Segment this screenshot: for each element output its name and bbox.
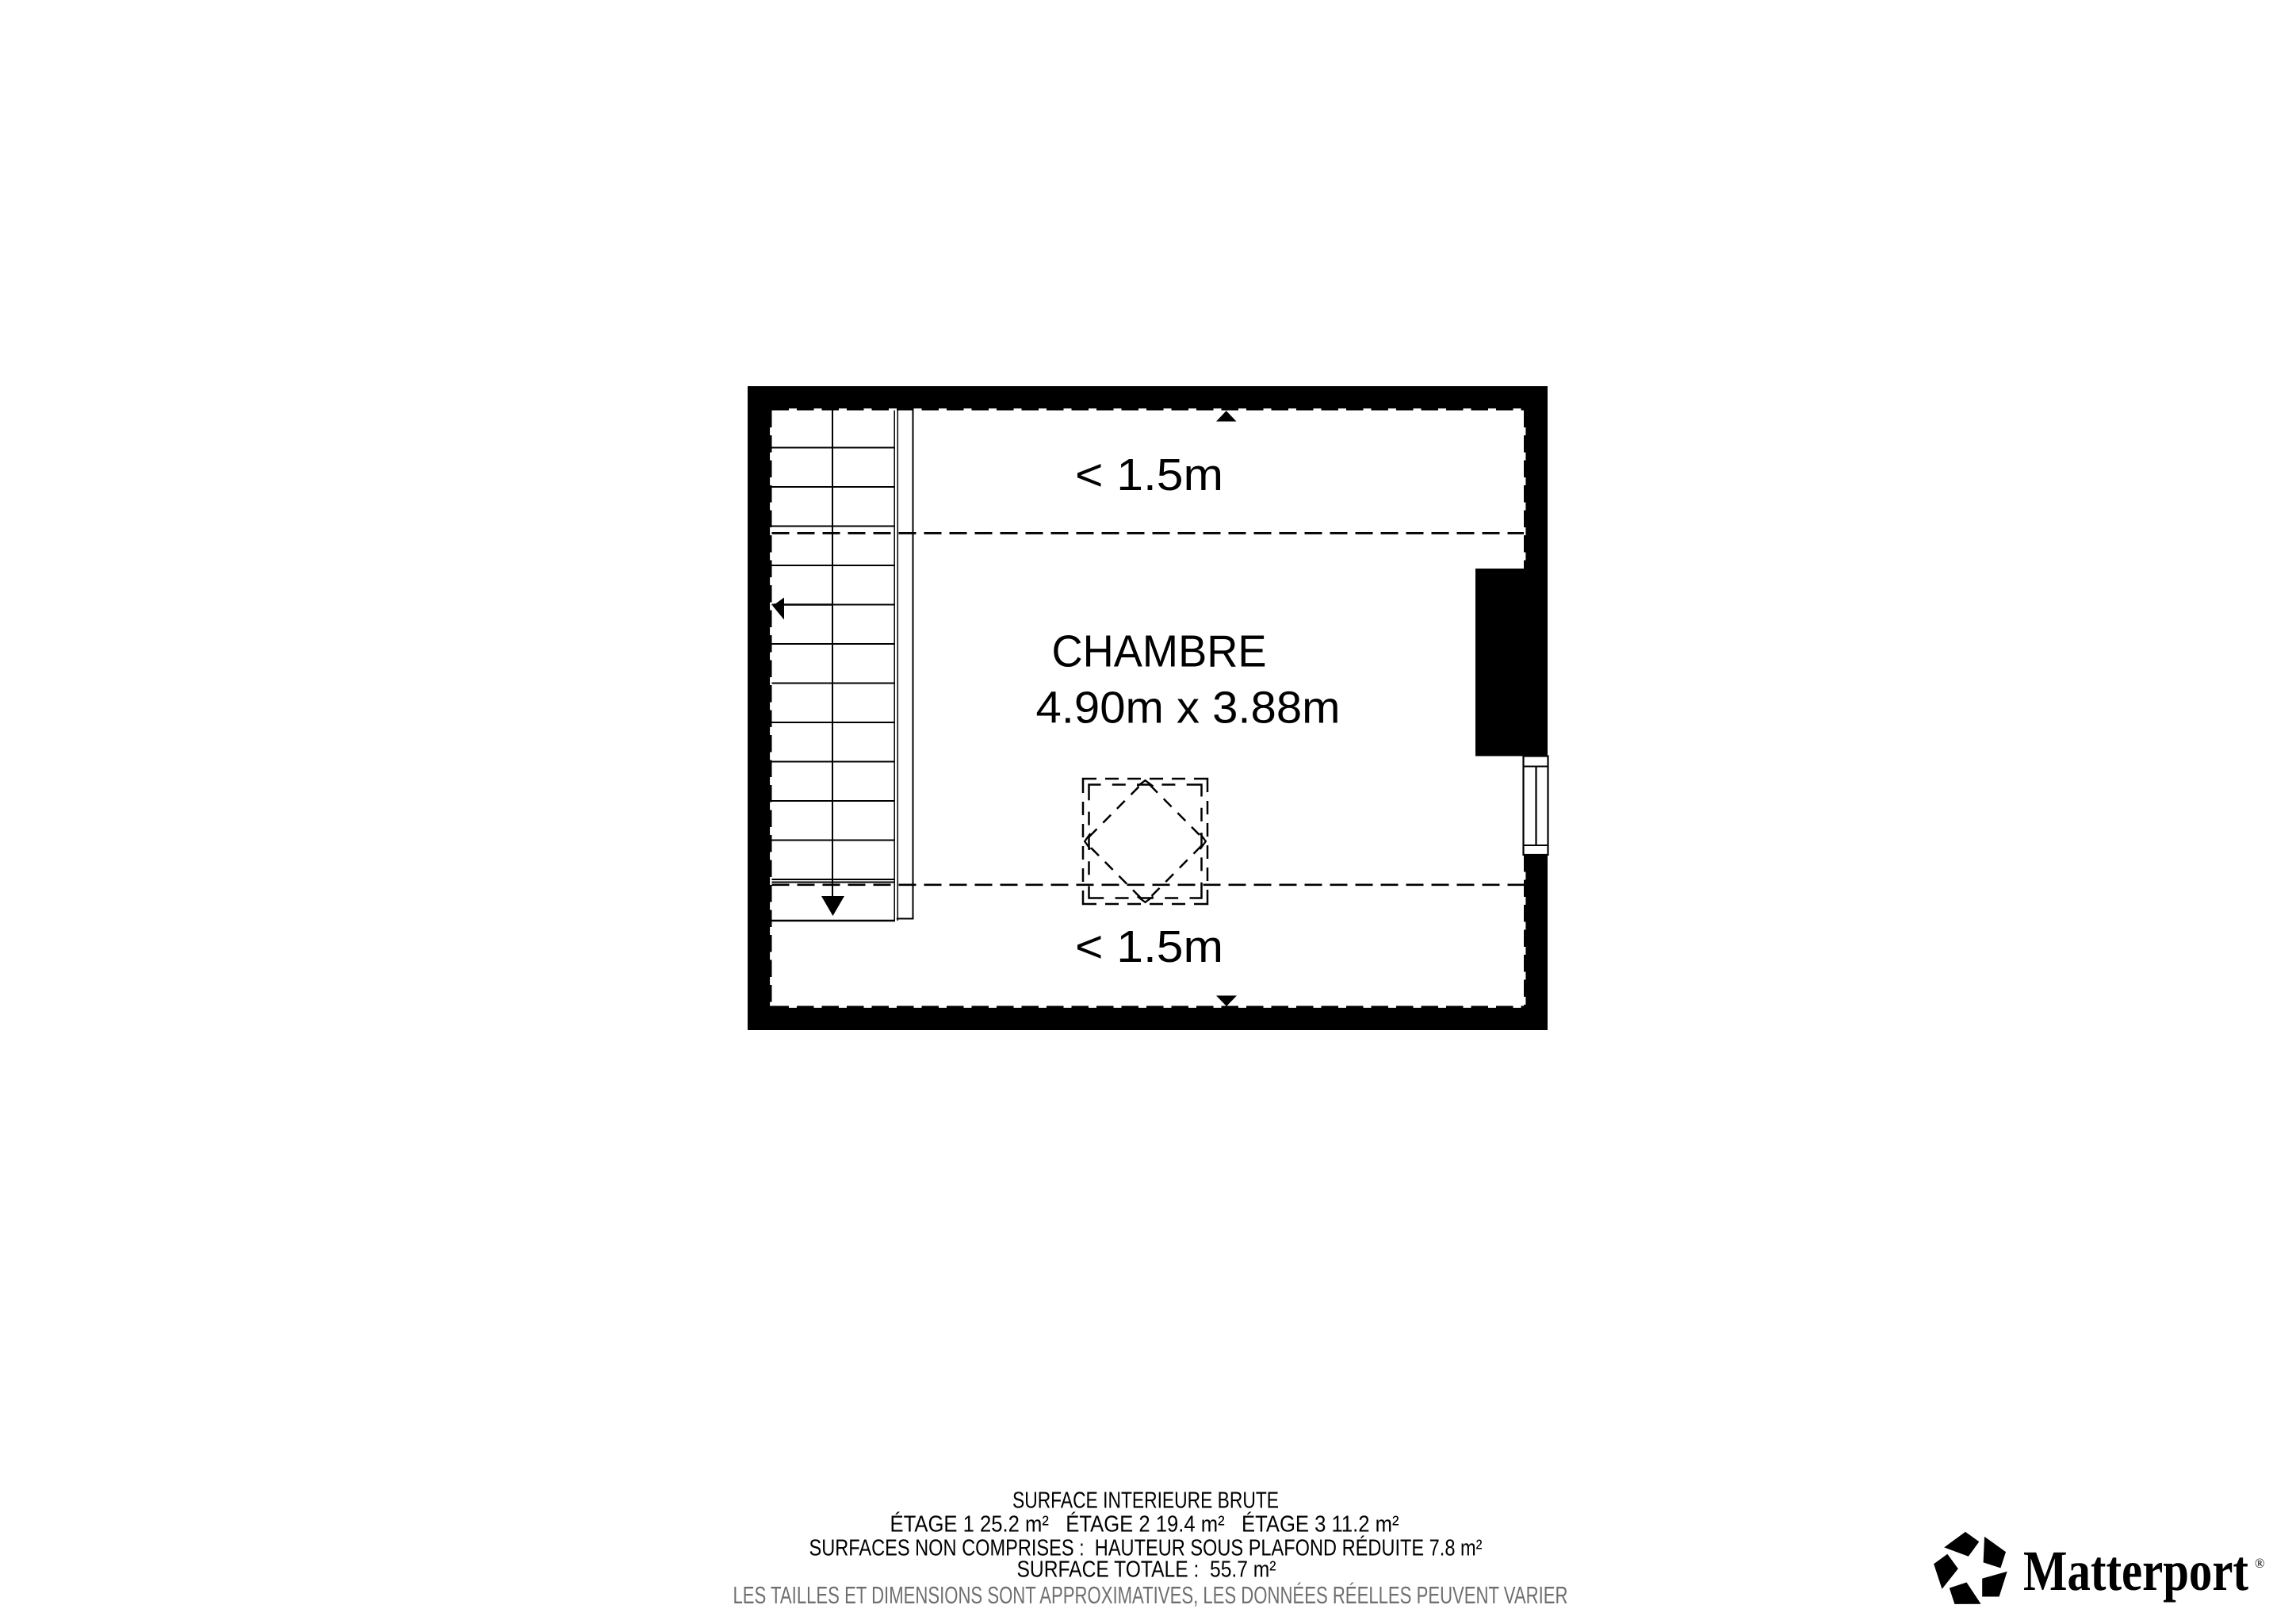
svg-text:< 1.5m: < 1.5m: [1075, 921, 1223, 972]
svg-text:Matterport: Matterport: [2023, 1538, 2248, 1603]
svg-text:SURFACE INTERIEURE BRUTE: SURFACE INTERIEURE BRUTE: [1012, 1488, 1279, 1514]
svg-text:LES TAILLES ET DIMENSIONS SONT: LES TAILLES ET DIMENSIONS SONT APPROXIMA…: [733, 1581, 1568, 1609]
svg-text:< 1.5m: < 1.5m: [1075, 450, 1223, 500]
svg-text:SURFACE TOTALE : 55.7 m²: SURFACE TOTALE : 55.7 m²: [1017, 1557, 1276, 1583]
svg-text:®: ®: [2255, 1556, 2265, 1571]
svg-text:4.90m x 3.88m: 4.90m x 3.88m: [1036, 683, 1341, 733]
svg-text:CHAMBRE: CHAMBRE: [1052, 626, 1267, 677]
svg-text:ÉTAGE 1 25.2 m² ÉTAGE 2 19.4: ÉTAGE 1 25.2 m² ÉTAGE 2 19.4 m² ÉTAGE 3 …: [890, 1512, 1399, 1538]
